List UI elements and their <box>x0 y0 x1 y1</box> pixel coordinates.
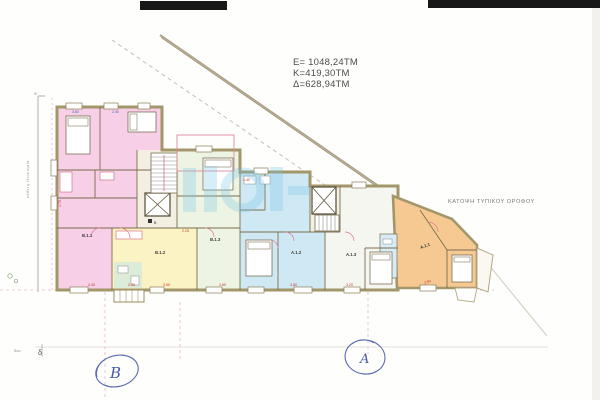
bed-pillow <box>205 160 231 167</box>
kitchen-counter <box>60 172 72 192</box>
window <box>51 160 57 176</box>
kitchen-counter <box>116 231 142 239</box>
window <box>104 103 118 109</box>
bed-pillow <box>372 254 390 260</box>
entrance-steps <box>114 290 144 302</box>
floor-plan-drawing: Ψ κάθετη ιδιοκτησία <box>0 0 600 400</box>
balcony <box>455 288 477 302</box>
dim: 3.60 <box>72 110 79 114</box>
dim: 3.80 <box>290 283 297 287</box>
axis-delta-label: δ <box>38 350 42 357</box>
watermark-glyph <box>288 186 310 195</box>
scan-bar-right <box>428 0 600 8</box>
bed-pillow <box>454 257 470 262</box>
dim: 2.05 <box>128 283 135 287</box>
fixture <box>118 266 128 273</box>
window <box>51 196 57 210</box>
area-total: E= 1048,24TM <box>293 57 358 68</box>
watermark-glyph <box>183 168 196 212</box>
column <box>148 219 152 223</box>
window <box>352 182 366 188</box>
window <box>206 287 222 293</box>
unit-label-b12: B.1.2 <box>155 250 166 255</box>
dim: 1.40 <box>243 178 250 182</box>
bed-pillow <box>130 114 137 130</box>
window <box>248 287 264 293</box>
area-k: K=419,30TM <box>293 68 350 79</box>
unit-label-b11: B.1.1 <box>82 233 93 238</box>
window <box>150 287 164 293</box>
dim: 2.40 <box>112 110 119 114</box>
axis-small-label: δου <box>14 348 21 353</box>
window <box>70 287 88 293</box>
area-delta: Δ=628,94TM <box>293 79 350 90</box>
window <box>420 285 436 291</box>
fixture <box>383 239 392 244</box>
counter <box>100 172 114 180</box>
area-annotations: E= 1048,24TM K=419,30TM Δ=628,94TM <box>293 57 358 90</box>
scan-edge-shading <box>592 0 600 400</box>
stairs-right <box>315 215 339 231</box>
unit-label-a13: A.1.3 <box>346 252 357 257</box>
dim: 4.70 <box>58 200 62 207</box>
dim: 2.25 <box>182 229 189 233</box>
unit-label-a12: A.1.2 <box>291 250 302 255</box>
watermark-glyph <box>270 167 283 211</box>
dim: 4.40 <box>88 283 95 287</box>
dim: 3.20 <box>346 283 353 287</box>
window <box>138 103 150 109</box>
scan-bar-left <box>140 1 227 10</box>
dim: 2.60 <box>219 283 226 287</box>
pen-letter-b: B <box>109 364 121 382</box>
pen-letter-a: A <box>359 352 369 367</box>
plan-title: ΚΑΤΟΨΗ ΤΥΠΙΚΟΥ ΟΡΟΦΟΥ <box>448 199 535 205</box>
stairs-left <box>151 153 177 193</box>
unit-label-b13: B.1.3 <box>210 237 221 242</box>
watermark-glyph <box>204 166 217 212</box>
dim: 3.00 <box>163 283 170 287</box>
bed-pillow <box>248 242 270 249</box>
window <box>66 103 82 109</box>
window <box>344 287 360 293</box>
bed-pillow <box>68 118 88 126</box>
window <box>196 146 212 152</box>
scanned-floor-plan-page: Ψ κάθετη ιδιοκτησία <box>0 0 600 400</box>
street-label: κάθετη ιδιοκτησία <box>26 160 30 198</box>
entrance <box>114 290 144 302</box>
window <box>294 287 312 293</box>
